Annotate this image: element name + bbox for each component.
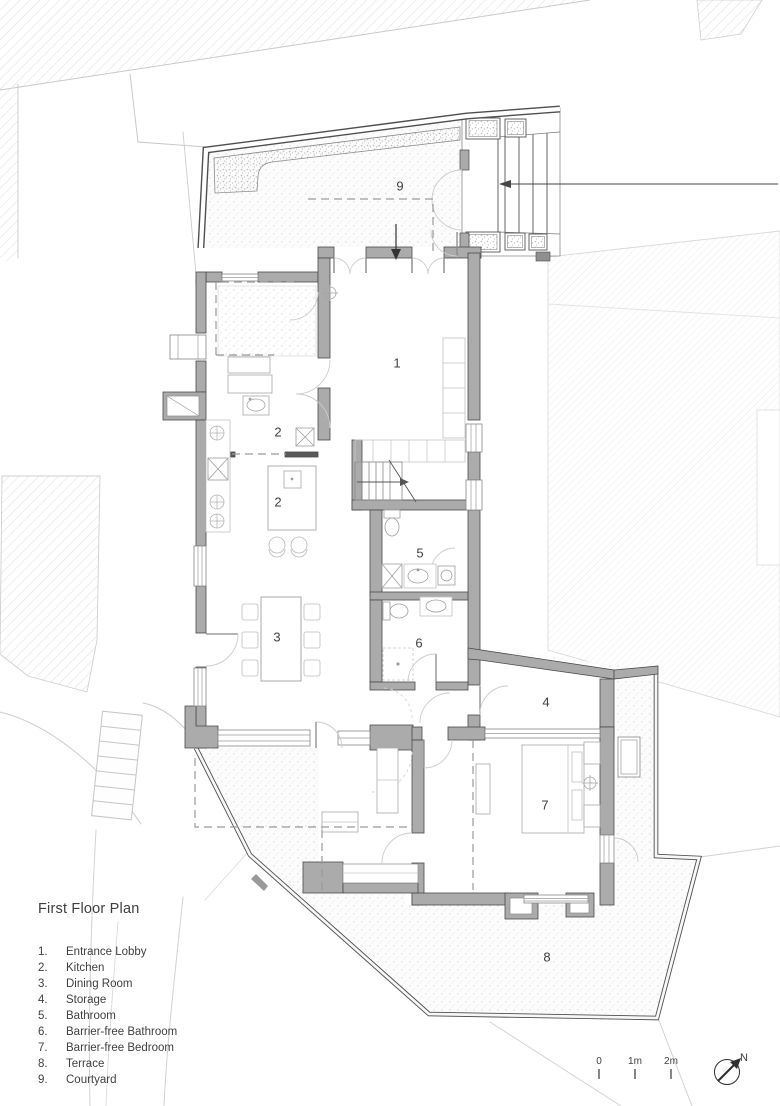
north-arrow-icon <box>715 1058 742 1085</box>
nightstand <box>584 742 600 764</box>
neighbor-hatch-top-right <box>697 0 762 40</box>
legend-item: 9.Courtyard <box>38 1072 177 1088</box>
scale-label-1m: 1m <box>628 1056 642 1067</box>
north-label: N <box>740 1052 748 1064</box>
room-number-8: 8 <box>543 950 550 965</box>
legend-item: 5.Bathroom <box>38 1008 177 1024</box>
legend-item: 6.Barrier-free Bathroom <box>38 1024 177 1040</box>
legend-item: 1.Entrance Lobby <box>38 944 177 960</box>
floor-plan-drawing <box>0 0 780 1106</box>
legend-item: 8.Terrace <box>38 1056 177 1072</box>
neighbor-hatch-right <box>548 231 780 717</box>
scale-bar <box>599 1069 671 1079</box>
page-title: First Floor Plan <box>38 901 140 917</box>
room-number-5: 5 <box>416 546 423 561</box>
scale-label-2m: 2m <box>664 1056 678 1067</box>
legend-item: 3.Dining Room <box>38 976 177 992</box>
room-number-7: 7 <box>541 798 548 813</box>
floor-plan-sheet: First Floor Plan 1.Entrance Lobby 2.Kitc… <box>0 0 780 1106</box>
legend: 1.Entrance Lobby 2.Kitchen 3.Dining Room… <box>38 944 177 1088</box>
pantry-floor <box>218 286 316 356</box>
room-number-2b: 2 <box>274 495 281 510</box>
toilet-icon <box>384 510 400 536</box>
site-steps <box>92 711 143 820</box>
room-number-3: 3 <box>273 630 280 645</box>
hall-wardrobe <box>377 748 398 813</box>
room-number-9: 9 <box>396 179 403 194</box>
scale-label-0: 0 <box>596 1056 602 1067</box>
room-number-6: 6 <box>415 636 422 651</box>
room-number-2a: 2 <box>274 425 281 440</box>
washer-icon <box>438 566 455 585</box>
neighbor-hatch-left-plot <box>0 476 100 692</box>
room-number-1: 1 <box>393 356 400 371</box>
legend-item: 4.Storage <box>38 992 177 1008</box>
nightstand <box>584 805 600 827</box>
legend-item: 7.Barrier-free Bedroom <box>38 1040 177 1056</box>
dining-fixtures <box>242 597 320 681</box>
neighbor-hatch-left-strip <box>0 84 18 263</box>
dining-table <box>261 597 301 681</box>
room-number-4: 4 <box>542 695 549 710</box>
wardrobe <box>476 764 490 814</box>
shaft-icon <box>382 564 402 588</box>
legend-item: 2.Kitchen <box>38 960 177 976</box>
